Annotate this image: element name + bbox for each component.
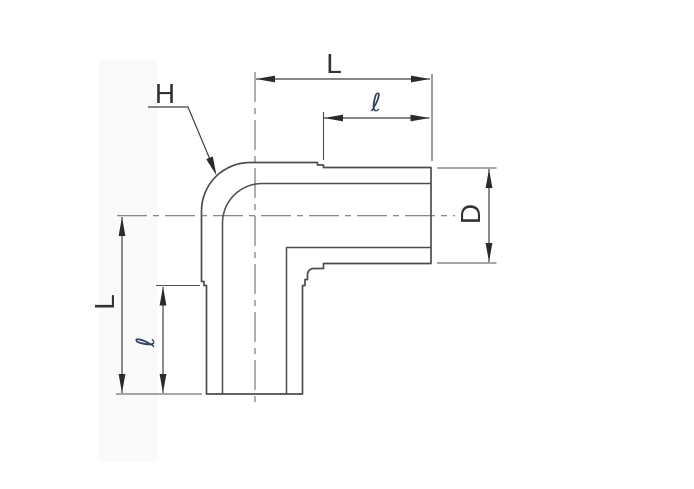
bore-inner-corner xyxy=(287,248,432,395)
drawing-canvas: L ℓ H D xyxy=(0,0,694,489)
arrowhead xyxy=(324,115,343,122)
arrowhead xyxy=(411,115,430,122)
label-D: D xyxy=(455,204,486,224)
elbow-outer-profile xyxy=(202,163,432,395)
label-L-top: L xyxy=(326,48,342,79)
arrowhead xyxy=(256,76,275,83)
leader-line xyxy=(148,107,214,169)
dimension-ell-top: ℓ xyxy=(324,88,430,160)
arrowhead xyxy=(411,76,430,83)
label-H: H xyxy=(155,78,175,109)
arrowhead xyxy=(160,287,167,306)
dimension-L-top: L xyxy=(256,48,432,161)
label-L-left: L xyxy=(89,294,120,310)
arrowhead xyxy=(206,157,216,176)
bore-inner-bend xyxy=(223,184,432,395)
arrowhead xyxy=(486,243,493,262)
arrowhead xyxy=(160,374,167,393)
arrowhead xyxy=(486,169,493,188)
label-ell-left: ℓ xyxy=(131,337,160,348)
fitting-outline xyxy=(202,163,432,395)
scan-artifact-band xyxy=(99,60,157,462)
label-ell-top: ℓ xyxy=(370,88,381,117)
leader-H: H xyxy=(148,78,217,176)
technical-drawing: L ℓ H D xyxy=(0,0,694,489)
